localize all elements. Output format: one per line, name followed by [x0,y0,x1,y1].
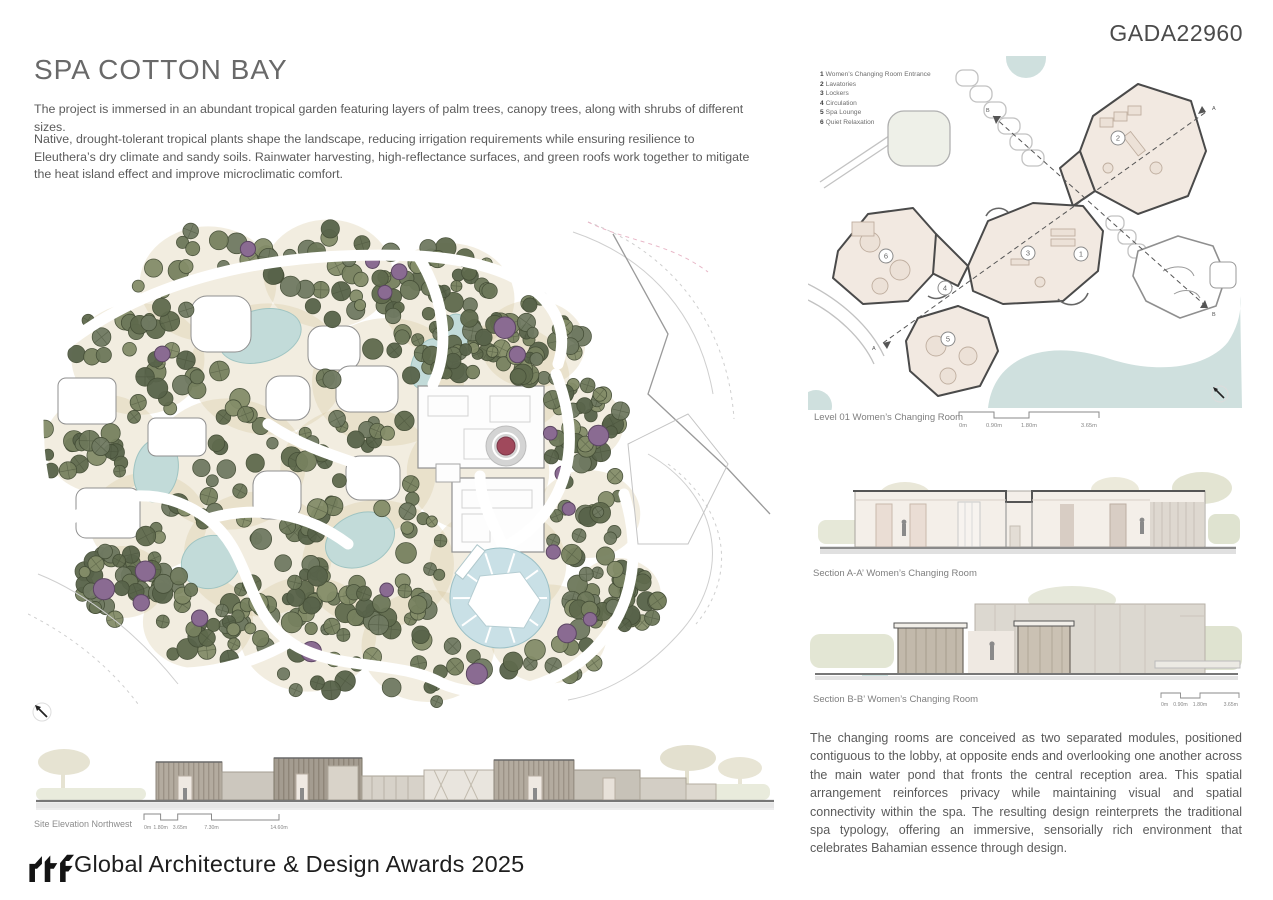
section-b-building [894,604,1240,674]
svg-text:3: 3 [1026,249,1030,258]
scale-tick-label: 0.90m [986,423,1002,429]
site-elevation-scalebar: 0m 1.80m 3.65m 7.30m 14.60m [142,810,292,834]
section-b-drawing [810,586,1242,690]
legend-item: 1Women’s Changing Room Entrance [820,70,931,80]
scale-tick-label: 3.65m [1224,702,1238,708]
section-b-caption: Section B-B’ Women’s Changing Room [813,694,978,705]
north-arrow-icon [33,703,51,721]
section-b-ground [815,674,1238,680]
legend-item: 3Lockers [820,89,931,99]
entry-code: GADA22960 [1109,20,1243,47]
scale-tick-label: 1.80m [1193,702,1207,708]
scale-tick-label: 3.65m [173,825,187,831]
svg-text:B: B [1212,312,1216,318]
site-plan-drawing [28,214,782,732]
presentation-board: GADA22960 SPA COTTON BAY The project is … [0,0,1273,900]
floor-plan-scalebar: 0m 0.90m 1.80m 3.65m [957,408,1107,432]
legend-item: 6Quiet Relaxation [820,118,931,128]
svg-text:4: 4 [943,284,947,293]
floor-plan-caption: Level 01 Women’s Changing Room [814,412,963,423]
section-a-drawing [810,460,1242,564]
scale-tick-label: 0.90m [1173,702,1187,708]
award-title: Global Architecture & Design Awards 2025 [74,851,524,878]
svg-text:A: A [1212,106,1216,112]
scale-tick-label: 1.80m [1021,423,1037,429]
floor-plan-legend: 1Women’s Changing Room Entrance 2Lavator… [820,70,931,127]
plan-pavilion [1133,236,1236,318]
scale-tick-label: 3.65m [1081,423,1097,429]
scale-tick-label: 0m [1161,702,1168,708]
svg-text:2: 2 [1116,134,1120,143]
description-paragraph: The changing rooms are conceived as two … [810,729,1242,858]
section-a-caption: Section A-A’ Women’s Changing Room [813,568,977,579]
scale-tick-label: 0m [959,423,967,429]
scale-tick-label: 0m [144,825,151,831]
svg-text:B: B [986,108,990,114]
svg-text:6: 6 [884,252,888,261]
svg-text:A: A [872,346,876,352]
site-elevation-caption: Site Elevation Northwest [34,819,132,829]
legend-item: 4Circulation [820,99,931,109]
scale-tick-label: 7.30m [204,825,218,831]
project-title: SPA COTTON BAY [34,54,288,86]
scale-tick-label: 1.80m [153,825,167,831]
rtf-logo [28,845,74,891]
scale-tick-label: 14.60m [270,825,287,831]
section-a-building [853,491,1205,547]
legend-item: 5Spa Lounge [820,108,931,118]
site-elevation-drawing [28,736,782,816]
site-elevation-illustration [28,736,782,816]
legend-item: 2Lavatories [820,80,931,90]
svg-text:5: 5 [946,335,950,344]
section-a-ground [820,548,1236,554]
plan-pond [988,296,1242,408]
svg-text:1: 1 [1079,250,1083,259]
intro-paragraph-2: Native, drought-tolerant tropical plants… [34,131,750,184]
elevation-buildings [156,758,716,800]
site-plan-illustration [28,214,782,732]
elevation-ground [36,801,774,809]
section-b-scalebar: 0m 0.90m 1.80m 3.65m [1160,690,1244,710]
